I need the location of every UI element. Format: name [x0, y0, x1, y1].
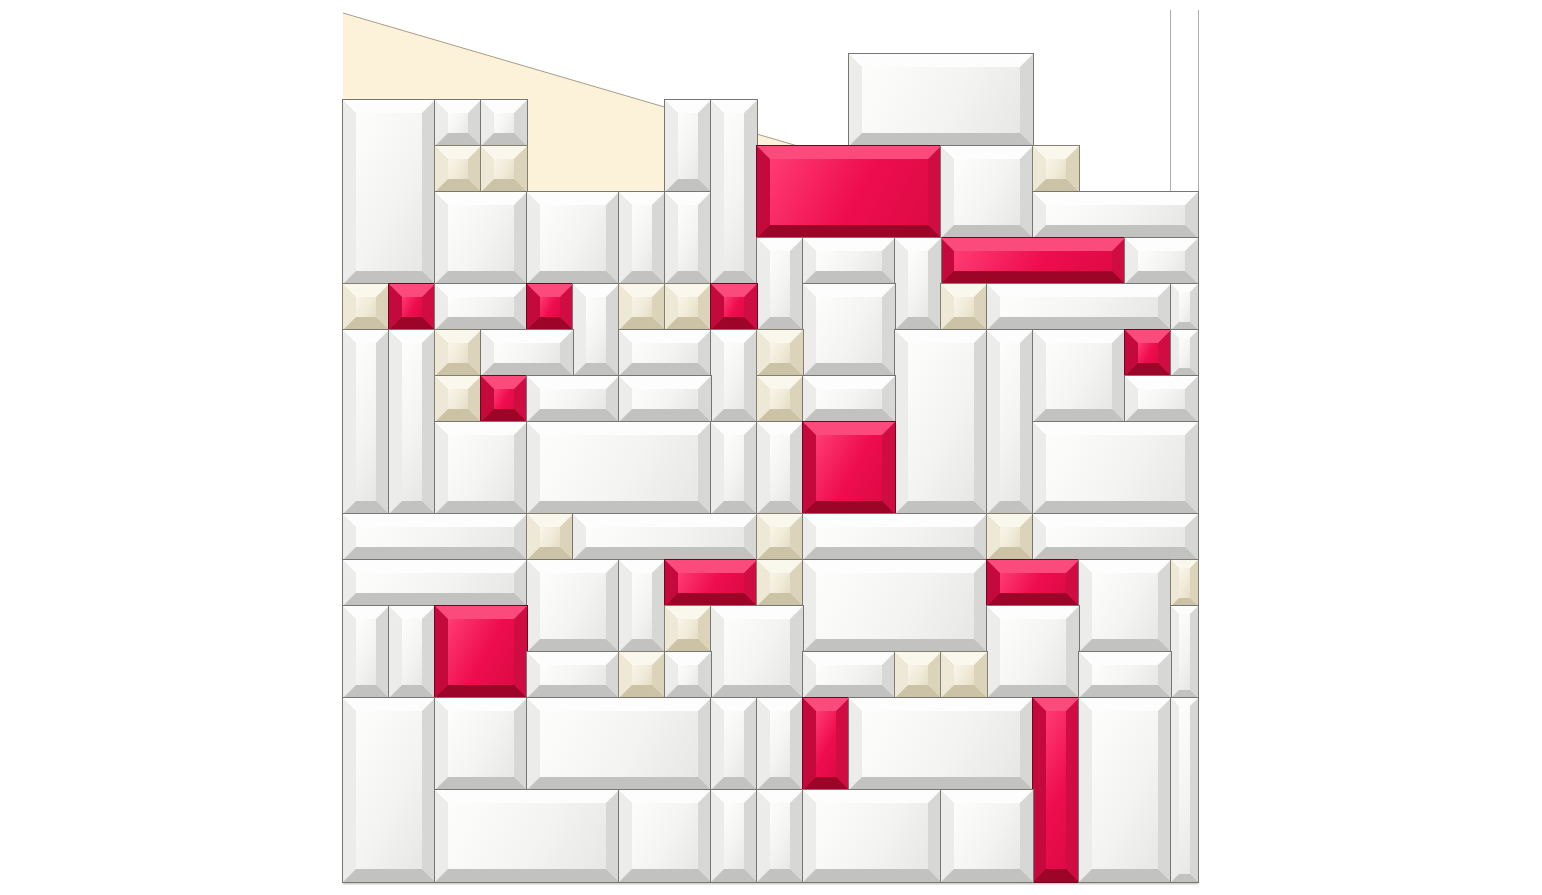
ivory-mirror-tile [757, 514, 803, 560]
white-mirror-tile [803, 376, 895, 422]
white-mirror-tile [757, 698, 803, 790]
white-mirror-tile [1033, 422, 1198, 514]
ivory-mirror-tile [895, 652, 941, 698]
crimson-accent-tile [665, 560, 757, 606]
ivory-mirror-tile [435, 330, 481, 376]
white-mirror-tile [711, 790, 757, 882]
white-mirror-tile [941, 790, 1033, 882]
ivory-mirror-tile [757, 376, 803, 422]
white-mirror-tile [987, 606, 1079, 698]
white-mirror-tile [619, 560, 665, 652]
ivory-mirror-tile [757, 330, 803, 376]
white-mirror-tile [435, 192, 527, 284]
white-mirror-tile [711, 100, 757, 284]
ivory-mirror-tile [435, 146, 481, 192]
white-mirror-tile [435, 100, 481, 146]
white-mirror-tile [757, 422, 803, 514]
crimson-accent-tile [803, 422, 895, 514]
white-mirror-tile [803, 652, 895, 698]
white-mirror-tile [527, 422, 711, 514]
white-mirror-tile [527, 560, 619, 652]
white-mirror-tile [711, 698, 757, 790]
white-mirror-tile [343, 514, 527, 560]
white-mirror-tile [619, 376, 711, 422]
room-wall-canvas [0, 0, 1542, 895]
white-mirror-tile [803, 790, 941, 882]
crimson-accent-tile [711, 284, 757, 330]
white-mirror-tile [711, 330, 757, 422]
white-mirror-tile [803, 238, 895, 284]
white-mirror-tile [987, 330, 1033, 514]
white-mirror-tile [665, 100, 711, 192]
white-mirror-tile [849, 698, 1033, 790]
white-mirror-tile [987, 284, 1171, 330]
white-mirror-tile [389, 606, 435, 698]
white-mirror-tile [343, 606, 389, 698]
white-mirror-tile [435, 284, 527, 330]
white-mirror-tile [895, 330, 987, 514]
white-mirror-tile [1079, 560, 1171, 652]
white-mirror-tile [1033, 330, 1125, 422]
ivory-mirror-tile [435, 376, 481, 422]
white-mirror-tile [343, 330, 389, 514]
crimson-accent-tile [941, 238, 1125, 284]
white-mirror-tile [481, 100, 527, 146]
ivory-mirror-tile [619, 652, 665, 698]
ivory-mirror-tile [343, 284, 389, 330]
white-mirror-tile [619, 790, 711, 882]
white-mirror-tile [435, 698, 527, 790]
white-mirror-tile [435, 790, 619, 882]
white-mirror-tile [1079, 698, 1171, 882]
crimson-accent-tile [435, 606, 527, 698]
ivory-mirror-tile [1033, 146, 1079, 192]
crimson-accent-tile [1125, 330, 1171, 376]
white-mirror-tile [435, 422, 527, 514]
crimson-accent-tile [757, 146, 941, 238]
ivory-mirror-tile [987, 514, 1033, 560]
white-mirror-tile [527, 652, 619, 698]
ivory-mirror-tile [1171, 560, 1198, 606]
white-mirror-tile [1079, 652, 1171, 698]
white-mirror-tile [527, 698, 711, 790]
white-mirror-tile [343, 560, 527, 606]
white-mirror-tile [619, 330, 711, 376]
white-mirror-tile [757, 238, 803, 330]
white-mirror-tile [573, 514, 757, 560]
ivory-mirror-tile [665, 284, 711, 330]
white-mirror-tile [527, 192, 619, 284]
ivory-mirror-tile [941, 652, 987, 698]
white-mirror-tile [1171, 698, 1198, 882]
white-mirror-tile [803, 514, 987, 560]
white-mirror-tile [1125, 376, 1198, 422]
white-mirror-tile [1171, 606, 1198, 698]
white-mirror-tile [343, 100, 435, 284]
white-mirror-tile [1171, 330, 1198, 376]
white-mirror-tile [849, 54, 1033, 146]
crimson-accent-tile [527, 284, 573, 330]
white-mirror-tile [389, 330, 435, 514]
white-mirror-tile [803, 560, 987, 652]
white-mirror-tile [941, 146, 1033, 238]
white-mirror-tile [711, 606, 803, 698]
white-mirror-tile [665, 652, 711, 698]
crimson-accent-tile [1033, 698, 1079, 882]
white-mirror-tile [895, 238, 941, 330]
ivory-mirror-tile [481, 146, 527, 192]
white-mirror-tile [665, 192, 711, 284]
ivory-mirror-tile [941, 284, 987, 330]
crimson-accent-tile [389, 284, 435, 330]
white-mirror-tile [1125, 238, 1198, 284]
white-mirror-tile [619, 192, 665, 284]
crimson-accent-tile [987, 560, 1079, 606]
white-mirror-tile [573, 284, 619, 376]
white-mirror-tile [1171, 284, 1198, 330]
ivory-mirror-tile [619, 284, 665, 330]
crimson-accent-tile [803, 698, 849, 790]
ivory-mirror-tile [527, 514, 573, 560]
white-mirror-tile [481, 330, 573, 376]
white-mirror-tile [803, 284, 895, 376]
ivory-mirror-tile [757, 560, 803, 606]
white-mirror-tile [527, 376, 619, 422]
white-mirror-tile [1033, 192, 1198, 238]
white-mirror-tile [343, 698, 435, 882]
white-mirror-tile [757, 790, 803, 882]
white-mirror-tile [1033, 514, 1198, 560]
white-mirror-tile [711, 422, 757, 514]
ivory-mirror-tile [665, 606, 711, 652]
crimson-accent-tile [481, 376, 527, 422]
